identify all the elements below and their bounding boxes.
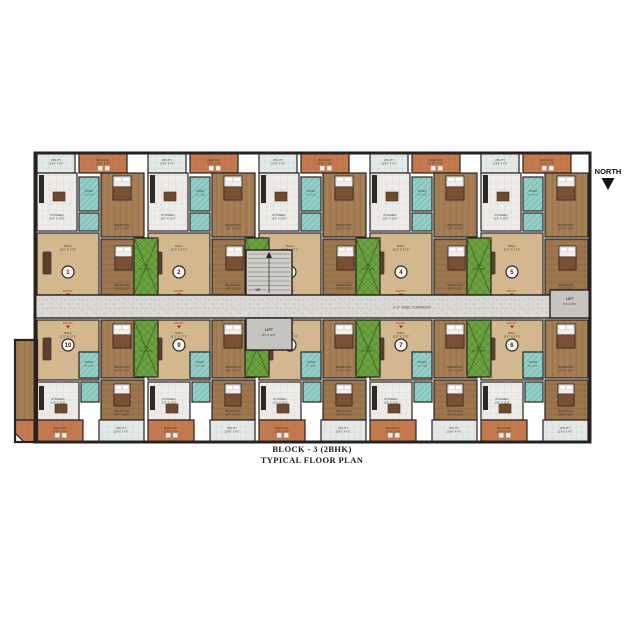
room-name-label: BEDROOM [558, 223, 574, 227]
pillow-icon [228, 248, 235, 252]
pillow-icon [117, 248, 124, 252]
table-icon [275, 192, 287, 201]
room-name-label: BALCONY [275, 426, 288, 430]
room-name-label: KITCHEN [384, 213, 397, 217]
kitchen-counter-icon [483, 175, 488, 203]
blanket-icon [226, 257, 243, 270]
chair-icon [395, 433, 400, 438]
room-name-label: BALCONY [207, 158, 220, 162]
pillow-icon [567, 178, 574, 182]
room-dims-label: 7'0" X 4'6" [306, 366, 317, 368]
room-name-label: TOILET [307, 361, 316, 364]
blanket-icon [446, 335, 464, 348]
table-icon [55, 404, 67, 413]
room-name-label: BALCONY [318, 158, 331, 162]
room-dims-label: 11'0" X 17'0" [393, 248, 410, 252]
entry-label: ENTRY [507, 321, 517, 325]
pillow-icon [560, 386, 566, 390]
room-dims-label: 11'0" X 12'0" [160, 218, 175, 221]
room-dims-label: 11'0" X 12'0" [336, 370, 351, 373]
pillow-icon [337, 178, 344, 182]
blanket-icon [448, 257, 465, 270]
chair-icon [499, 433, 504, 438]
room-dims-label: 7'0" X 4'6" [306, 195, 317, 197]
chair-icon [55, 433, 60, 438]
room-name-label: KITCHEN [162, 213, 175, 217]
pillow-icon [123, 386, 129, 390]
duct-dims-label: 8'0" X 12'0" [139, 350, 152, 353]
duct-name-label: OTA [143, 264, 149, 268]
chair-icon [277, 433, 282, 438]
room-name-label: BALCONY [53, 426, 66, 430]
room-dims-label: 11'0" X 17'0" [60, 335, 77, 339]
room-dims-label: 11'0" X 12'0" [336, 228, 351, 231]
table-icon [386, 192, 398, 201]
room-name-label: BEDROOM [225, 283, 241, 287]
room-dims-label: 11'4" X 11'0" [336, 288, 351, 291]
room-name-label: BEDROOM [225, 409, 241, 413]
room-name-label: BALCONY [386, 426, 399, 430]
room-name-label: UTILITY [384, 158, 395, 162]
room-dims-label: 11'0" X 12'0" [382, 218, 397, 221]
room-name-label: TOILET [418, 361, 427, 364]
room-name-label: KITCHEN [51, 213, 64, 217]
duct-name-label: OTA [365, 346, 371, 350]
duct-name-label: OTA [365, 264, 371, 268]
table-icon [164, 192, 176, 201]
pillow-icon [456, 386, 462, 390]
room-toilet [81, 382, 99, 402]
room-name-label: BEDROOM [447, 409, 463, 413]
room-dims-label: 11'4" X 11'0" [336, 414, 351, 417]
chair-icon [506, 433, 511, 438]
kitchen-counter-icon [150, 175, 155, 203]
room-name-label: TOILET [196, 190, 205, 193]
room-name-label: BEDROOM [447, 283, 463, 287]
entry-label: ENTRY [396, 289, 406, 293]
blanket-icon [224, 187, 242, 200]
plan-caption: BLOCK - 3 (2BHK) TYPICAL FLOOR PLAN [261, 444, 364, 465]
room-toilet [525, 382, 543, 402]
table-icon [499, 404, 511, 413]
unit-number: 5 [510, 270, 514, 276]
unit-number: 4 [399, 270, 403, 276]
pillow-icon [449, 386, 455, 390]
duct-name-label: OTA [476, 346, 482, 350]
unit-number: 6 [510, 343, 514, 349]
chair-icon [105, 166, 110, 171]
pillow-icon [235, 248, 242, 252]
north-label: NORTH [595, 167, 622, 176]
room-name-label: BEDROOM [114, 409, 130, 413]
room-dims-label: 11'0" X 17'0" [504, 248, 521, 252]
pillow-icon [559, 326, 566, 330]
pillow-icon [561, 248, 568, 252]
room-name-label: KITCHEN [273, 213, 286, 217]
room-dims-label: 11'0" X 12'0" [271, 218, 286, 221]
room-name-label: KITCHEN [496, 397, 509, 401]
room-name-label: BALCONY [96, 158, 109, 162]
lift-name-label: LIFT [566, 297, 574, 301]
pillow-icon [567, 326, 574, 330]
kitchen-counter-icon [372, 386, 377, 410]
lift-dims-label: 8'0 X 6'6" [262, 333, 276, 337]
room-toilet [192, 382, 210, 402]
room-name-label: BEDROOM [447, 223, 463, 227]
room-dims-label: 11'4" X 11'0" [114, 414, 129, 417]
kitchen-counter-icon [39, 386, 44, 410]
room-dims-label: 11'4" X 11'0" [447, 288, 462, 291]
room-dims-label: 11'0" X 12'0" [447, 370, 462, 373]
duct-dims-label: 8'0" X 12'0" [472, 350, 485, 353]
room-toilet [414, 382, 432, 402]
room-dims-label: 11'0" X 12'0" [114, 228, 129, 231]
pillow-icon [123, 178, 130, 182]
corridor-label: 4'-6" WIDE CORRIDOR [393, 306, 431, 310]
room-name-label: BEDROOM [558, 283, 574, 287]
blanket-icon [113, 187, 131, 200]
unit-number: 1 [66, 270, 70, 276]
pillow-icon [115, 326, 122, 330]
room-name-label: BEDROOM [558, 365, 574, 369]
room-name-label: TOILET [529, 190, 538, 193]
table-icon [166, 404, 178, 413]
blanket-icon [335, 335, 353, 348]
pillow-icon [226, 326, 233, 330]
room-name-label: BEDROOM [447, 365, 463, 369]
pillow-icon [448, 178, 455, 182]
corridor [35, 295, 590, 318]
pillow-icon [234, 326, 241, 330]
floor-plan-drawing: UTILITY11'6½" X 4'0"BALCONY11'6½" X 4'6"… [0, 0, 624, 624]
pillow-icon [123, 326, 130, 330]
unit-number: 9 [177, 343, 181, 349]
room-dims-label: 11'0" X 12'0" [493, 218, 508, 221]
room-name-label: TOILET [196, 361, 205, 364]
pillow-icon [346, 248, 353, 252]
blanket-icon [113, 335, 131, 348]
room-dims-label: 11'0" X 12'0" [225, 370, 240, 373]
table-icon [53, 192, 65, 201]
sofa-icon [43, 252, 51, 274]
chair-icon [438, 166, 443, 171]
pillow-icon [456, 178, 463, 182]
chair-icon [542, 166, 547, 171]
caption-block-title: BLOCK - 3 (2BHK) [272, 444, 351, 454]
room-dims-label: 11'4" X 11'0" [114, 288, 129, 291]
blanket-icon [224, 335, 242, 348]
kitchen-counter-icon [39, 175, 44, 203]
duct-dims-label: 8'0" X 12'0" [361, 350, 374, 353]
duct-dims-label: 8'0" X 12'0" [472, 268, 485, 271]
north-indicator: NORTH [595, 167, 622, 190]
room-dims-label: 11'0" X 17'0" [504, 335, 521, 339]
pillow-icon [124, 248, 131, 252]
chair-icon [216, 166, 221, 171]
pillow-icon [234, 386, 240, 390]
room-toilet [303, 382, 321, 402]
pillow-icon [456, 326, 463, 330]
duct-dims-label: 8'0" X 12'0" [361, 268, 374, 271]
room-dims-label: 11'0" X 17'0" [393, 335, 410, 339]
kitchen-counter-icon [483, 386, 488, 410]
room-dims-label: 11'0" X 17'0" [171, 248, 188, 252]
pillow-icon [116, 386, 122, 390]
chair-icon [284, 433, 289, 438]
table-icon [497, 192, 509, 201]
room-dims-label: 11'0" X 12'0" [49, 218, 64, 221]
room-dims-label: 11'0" X 17'0" [171, 335, 188, 339]
room-dims-label: 11'4" X 11'0" [558, 414, 573, 417]
entry-label: ENTRY [174, 289, 184, 293]
room-name-label: BEDROOM [336, 283, 352, 287]
room-name-label: UTILITY [495, 158, 506, 162]
room-dims-label: 7'0" X 4'6" [84, 366, 95, 368]
room-dims-label: 11'0" X 12'0" [114, 370, 129, 373]
pillow-icon [568, 248, 575, 252]
room-name-label: UTILITY [227, 426, 238, 430]
pillow-icon [115, 178, 122, 182]
room-name-label: BEDROOM [114, 223, 130, 227]
entry-label: ENTRY [396, 321, 406, 325]
caption-plan-type: TYPICAL FLOOR PLAN [261, 455, 364, 465]
table-icon [277, 404, 289, 413]
room-dims-label: 7'0" X 4'6" [417, 195, 428, 197]
room-dims-label: 11'4" X 11'0" [225, 414, 240, 417]
room-name-label: TOILET [418, 190, 427, 193]
chair-icon [62, 433, 67, 438]
chair-icon [549, 166, 554, 171]
kitchen-counter-icon [261, 386, 266, 410]
pillow-icon [227, 386, 233, 390]
room-name-label: UTILITY [162, 158, 173, 162]
blanket-icon [335, 187, 353, 200]
room-dims-label: 7'0" X 4'6" [195, 366, 206, 368]
blanket-icon [337, 257, 354, 270]
room-name-label: BEDROOM [336, 223, 352, 227]
pillow-icon [345, 178, 352, 182]
room-dims-label: 11'0" X 12'0" [447, 228, 462, 231]
unit-number: 2 [177, 270, 181, 276]
room-name-label: KITCHEN [274, 397, 287, 401]
blanket-icon [559, 257, 576, 270]
stair-up-label: UP [256, 288, 262, 292]
blanket-icon [557, 187, 575, 200]
pillow-icon [338, 386, 344, 390]
room-name-label: KITCHEN [385, 397, 398, 401]
room-name-label: BEDROOM [114, 365, 130, 369]
room-dims-label: 7'0" X 4'6" [528, 195, 539, 197]
room-dims-label: 7'0" X 4'6" [417, 366, 428, 368]
room-name-label: KITCHEN [495, 213, 508, 217]
duct-name-label: OTA [476, 264, 482, 268]
blanket-icon [225, 394, 241, 406]
sofa-icon [43, 338, 51, 360]
chair-icon [166, 433, 171, 438]
chair-icon [327, 166, 332, 171]
room-name-label: BALCONY [429, 158, 442, 162]
room-name-label: UTILITY [51, 158, 62, 162]
room-toilet [190, 213, 210, 231]
pillow-icon [337, 326, 344, 330]
room-name-label: BEDROOM [336, 409, 352, 413]
room-name-label: BEDROOM [114, 283, 130, 287]
chair-icon [388, 433, 393, 438]
room-name-label: UTILITY [116, 426, 127, 430]
kitchen-counter-icon [150, 386, 155, 410]
kitchen-counter-icon [372, 175, 377, 203]
chair-icon [320, 166, 325, 171]
entry-label: ENTRY [174, 321, 184, 325]
entry-label: ENTRY [507, 289, 517, 293]
room-name-label: BALCONY [497, 426, 510, 430]
room-toilet [523, 213, 543, 231]
duct-name-label: OTA [143, 346, 149, 350]
kitchen-counter-icon [261, 175, 266, 203]
room-name-label: BEDROOM [336, 365, 352, 369]
pillow-icon [567, 386, 573, 390]
room-name-label: BEDROOM [225, 365, 241, 369]
entry-label: ENTRY [63, 321, 73, 325]
floor-plan-page: { "plan": { "caption_line1": "BLOCK - 3 … [0, 0, 624, 624]
entry-label: ENTRY [63, 289, 73, 293]
room-dims-label: 7'0" X 4'6" [84, 195, 95, 197]
room-dims-label: 7'0" X 4'6" [195, 195, 206, 197]
lift-dims-label: 5'0 X 8'0" [563, 302, 576, 306]
room-name-label: BEDROOM [225, 223, 241, 227]
pillow-icon [226, 178, 233, 182]
room-dims-label: 11'4" X 11'0" [225, 288, 240, 291]
pillow-icon [345, 326, 352, 330]
room-name-label: UTILITY [273, 158, 284, 162]
pillow-icon [339, 248, 346, 252]
room-name-label: KITCHEN [163, 397, 176, 401]
room-name-label: KITCHEN [52, 397, 65, 401]
room-dims-label: 11'4" X 11'0" [447, 414, 462, 417]
room-dims-label: 7'0" X 4'6" [528, 366, 539, 368]
pillow-icon [450, 248, 457, 252]
blanket-icon [115, 257, 132, 270]
room-name-label: TOILET [85, 361, 94, 364]
pillow-icon [559, 178, 566, 182]
pillow-icon [234, 178, 241, 182]
room-toilet [412, 213, 432, 231]
room-name-label: BALCONY [164, 426, 177, 430]
chair-icon [209, 166, 214, 171]
room-toilet [79, 213, 99, 231]
blanket-icon [114, 394, 130, 406]
unit-number: 7 [399, 343, 403, 349]
north-arrow-icon [602, 178, 615, 190]
room-name-label: TOILET [529, 361, 538, 364]
table-icon [388, 404, 400, 413]
blanket-icon [557, 335, 575, 348]
room-name-label: UTILITY [449, 426, 460, 430]
room-name-label: UTILITY [338, 426, 349, 430]
unit-number: 10 [65, 343, 72, 349]
pillow-icon [345, 386, 351, 390]
chair-icon [173, 433, 178, 438]
room-name-label: UTILITY [560, 426, 571, 430]
blanket-icon [447, 394, 463, 406]
room-name-label: TOILET [85, 190, 94, 193]
room-toilet [301, 213, 321, 231]
room-name-label: BEDROOM [558, 409, 574, 413]
chair-icon [431, 166, 436, 171]
pillow-icon [457, 248, 464, 252]
room-dims-label: 11'0" X 12'0" [558, 370, 573, 373]
room-name-label: TOILET [307, 190, 316, 193]
blanket-icon [336, 394, 352, 406]
pillow-icon [448, 326, 455, 330]
blanket-icon [446, 187, 464, 200]
lift-name-label: LIFT [265, 328, 274, 332]
room-dims-label: 11'0" X 12'0" [225, 228, 240, 231]
blanket-icon [558, 394, 574, 406]
chair-icon [98, 166, 103, 171]
room-dims-label: 11'0" X 17'0" [60, 248, 77, 252]
room-dims-label: 11'0" X 12'0" [558, 228, 573, 231]
duct-dims-label: 8'0" X 12'0" [139, 268, 152, 271]
room-name-label: BALCONY [540, 158, 553, 162]
